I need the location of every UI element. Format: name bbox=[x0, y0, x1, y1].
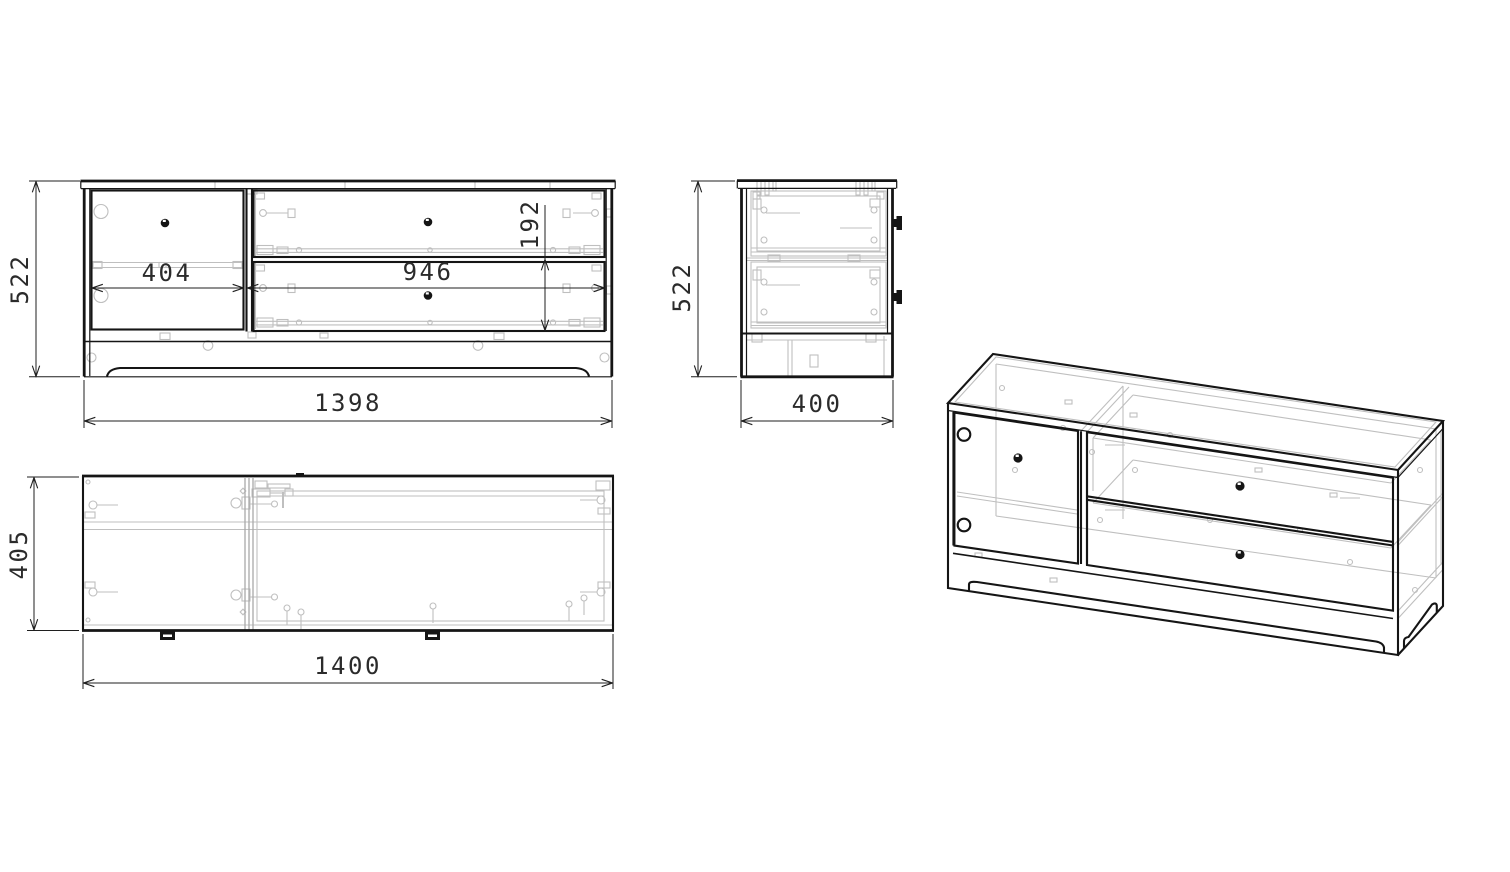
iso-outline bbox=[948, 354, 1443, 655]
iso-front-face bbox=[948, 403, 1398, 655]
dim-door-width: 404 bbox=[142, 259, 193, 287]
plan-view-outline bbox=[82, 473, 614, 640]
technical-drawing-canvas: 522 404 946 192 1398 bbox=[0, 0, 1510, 872]
iso-door-panel bbox=[954, 413, 1078, 564]
dim-side-height: 522 bbox=[668, 262, 696, 313]
front-view: 522 404 946 192 1398 bbox=[6, 181, 616, 428]
front-view-dimensions: 522 404 946 192 1398 bbox=[6, 181, 612, 428]
dim-plan-depth: 405 bbox=[5, 529, 33, 580]
side-view-hardware-details bbox=[746, 181, 888, 376]
iso-interior-details bbox=[955, 357, 1443, 619]
side-lower-knob-profile bbox=[893, 290, 903, 304]
plan-view-hardware-details bbox=[84, 480, 612, 629]
iso-hinge-bottom bbox=[958, 519, 971, 532]
front-plinth-arch bbox=[107, 368, 589, 377]
plan-divider bbox=[245, 478, 253, 630]
iso-drawer-area bbox=[1087, 432, 1393, 611]
side-upper-knob-profile bbox=[893, 216, 903, 230]
plan-view: 405 1400 bbox=[5, 473, 614, 689]
dim-front-total-width: 1398 bbox=[314, 389, 382, 417]
front-divider bbox=[247, 189, 253, 332]
iso-hinge-top bbox=[958, 428, 971, 441]
isometric-view bbox=[948, 354, 1443, 655]
dim-plan-total-width: 1400 bbox=[314, 652, 382, 680]
side-view-dimensions: 522 400 bbox=[668, 181, 893, 428]
drawing-svg: 522 404 946 192 1398 bbox=[0, 0, 1510, 872]
dim-drawer-height: 192 bbox=[516, 199, 544, 250]
dim-front-height: 522 bbox=[6, 254, 34, 305]
plan-view-dimensions: 405 1400 bbox=[5, 477, 613, 689]
dim-side-depth: 400 bbox=[792, 390, 843, 418]
side-view: 522 400 bbox=[668, 181, 902, 428]
dim-drawer-width: 946 bbox=[403, 258, 454, 286]
